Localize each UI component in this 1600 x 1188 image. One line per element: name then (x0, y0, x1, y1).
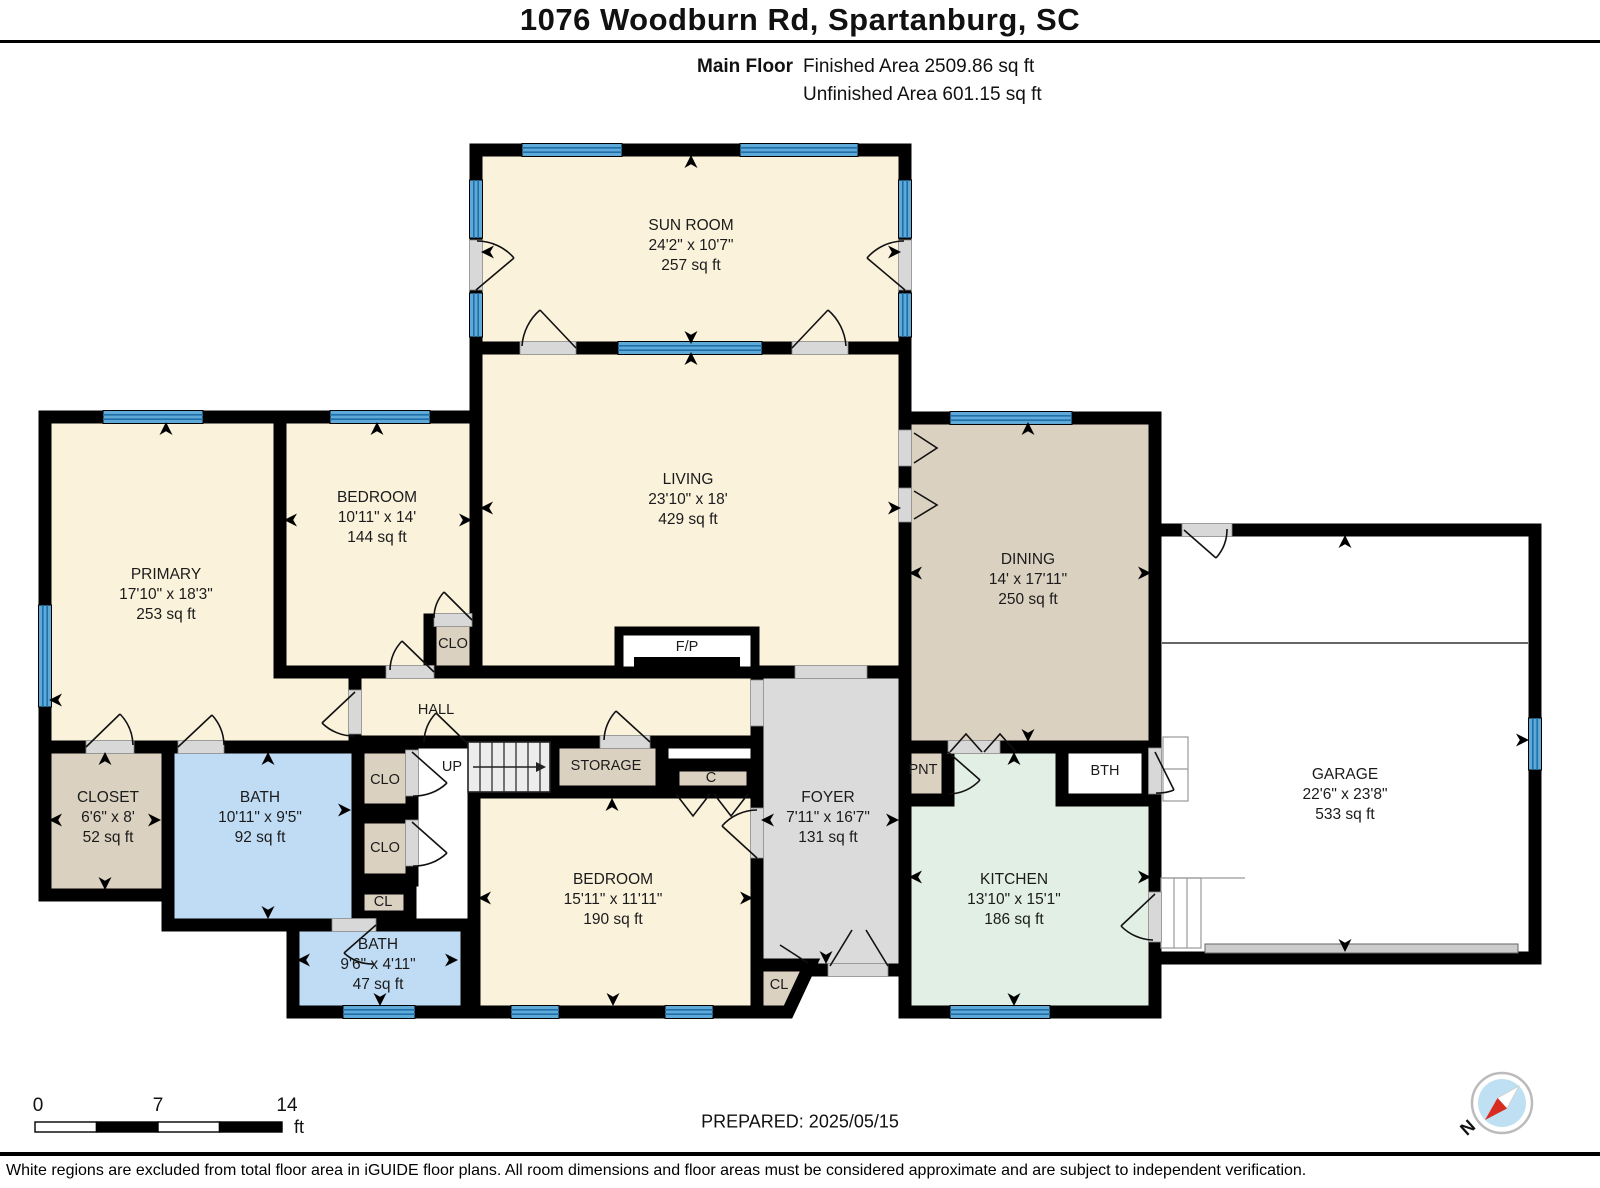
floor-plan-drawing (0, 0, 1600, 1188)
room-label-bath: BATH10'11" x 9'5"92 sq ft (218, 788, 302, 848)
room-label-foyer: FOYER7'11" x 16'7"131 sq ft (786, 788, 870, 848)
room-label-bedroom2: BEDROOM15'11" x 11'11"190 sq ft (564, 870, 663, 930)
scale-unit: ft (294, 1117, 304, 1138)
finished-area: Finished Area 2509.86 sq ft (803, 56, 1034, 78)
room-label-garage: GARAGE22'6" x 23'8"533 sq ft (1302, 765, 1387, 825)
label-pnt: PNT (909, 762, 938, 778)
footer-disclaimer: White regions are excluded from total fl… (6, 1162, 1594, 1180)
room-label-dining: DINING14' x 17'11"250 sq ft (989, 550, 1067, 610)
scale-tick-7: 7 (153, 1095, 164, 1117)
floorplan-page: { "header": { "title": "1076 Woodburn Rd… (0, 0, 1600, 1188)
stairs-up (468, 742, 550, 792)
room-label-closet: CLOSET6'6" x 8'52 sq ft (77, 788, 139, 848)
scale-tick-0: 0 (33, 1095, 44, 1117)
room-label-sunroom: SUN ROOM24'2" x 10'7"257 sq ft (648, 216, 733, 276)
compass-icon (1472, 1073, 1532, 1133)
label-cl-hall: CL (374, 894, 393, 910)
room-garage (1155, 530, 1535, 958)
scale-bar (35, 1122, 282, 1132)
page-title: 1076 Woodburn Rd, Spartanburg, SC (0, 2, 1600, 38)
label-c-closet: C (706, 770, 716, 786)
room-label-bath2: BATH9'6" x 4'11"47 sq ft (340, 935, 415, 995)
floor-label: Main Floor (697, 56, 793, 78)
label-fireplace: F/P (676, 639, 699, 655)
label-storage: STORAGE (571, 758, 642, 774)
label-hall: HALL (418, 702, 454, 718)
unfinished-area: Unfinished Area 601.15 sq ft (803, 84, 1042, 106)
footer-divider (0, 1152, 1600, 1156)
label-up: UP (442, 759, 462, 775)
label-cl-foyer: CL (770, 977, 789, 993)
prepared-date: PREPARED: 2025/05/15 (701, 1112, 899, 1133)
label-bth: BTH (1091, 763, 1120, 779)
room-hall (355, 672, 757, 742)
room-label-living: LIVING23'10" x 18'429 sq ft (648, 470, 728, 530)
header-divider (0, 40, 1600, 43)
label-clo2: CLO (370, 840, 400, 856)
room-label-kitchen: KITCHEN13'10" x 15'1"186 sq ft (967, 870, 1061, 930)
room-label-bedroom: BEDROOM10'11" x 14'144 sq ft (337, 488, 417, 548)
label-clo-bedroom: CLO (438, 636, 468, 652)
scale-tick-14: 14 (276, 1095, 297, 1117)
room-label-primary: PRIMARY17'10" x 18'3"253 sq ft (119, 565, 213, 625)
label-clo1: CLO (370, 772, 400, 788)
